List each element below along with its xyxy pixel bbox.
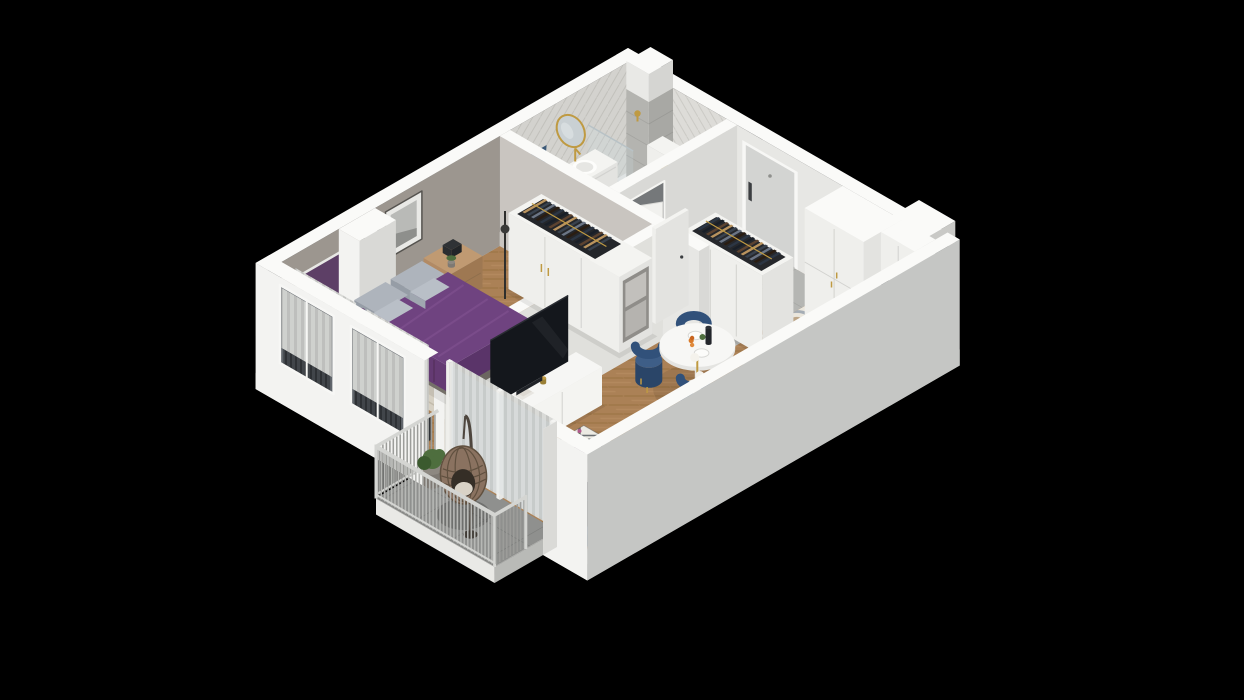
black-canvas: [0, 0, 1244, 700]
apartment-3d-floor-plan-render: [0, 0, 1244, 700]
bedroom-door: [652, 208, 688, 324]
